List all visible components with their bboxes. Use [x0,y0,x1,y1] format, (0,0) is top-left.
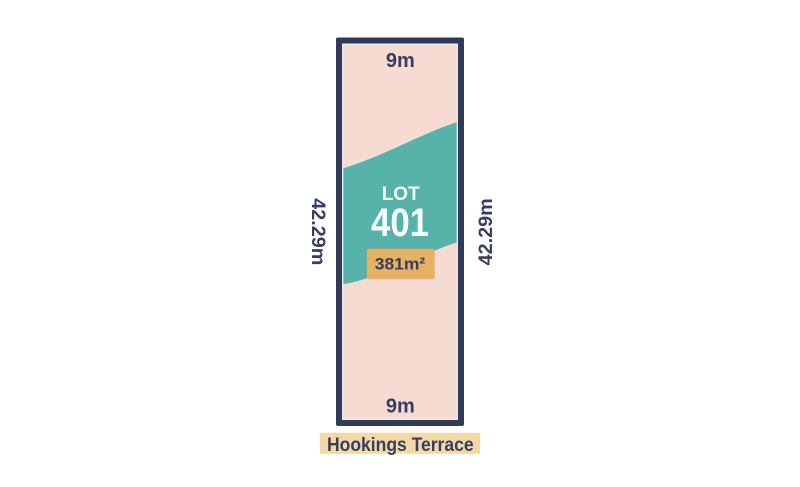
svg-text:9m: 9m [386,50,415,72]
svg-text:42.29m: 42.29m [307,198,329,265]
svg-text:401: 401 [371,201,429,245]
svg-text:381m²: 381m² [375,255,426,274]
svg-text:Hookings Terrace: Hookings Terrace [327,434,474,456]
svg-text:9m: 9m [386,396,415,418]
svg-text:42.29m: 42.29m [475,198,497,265]
